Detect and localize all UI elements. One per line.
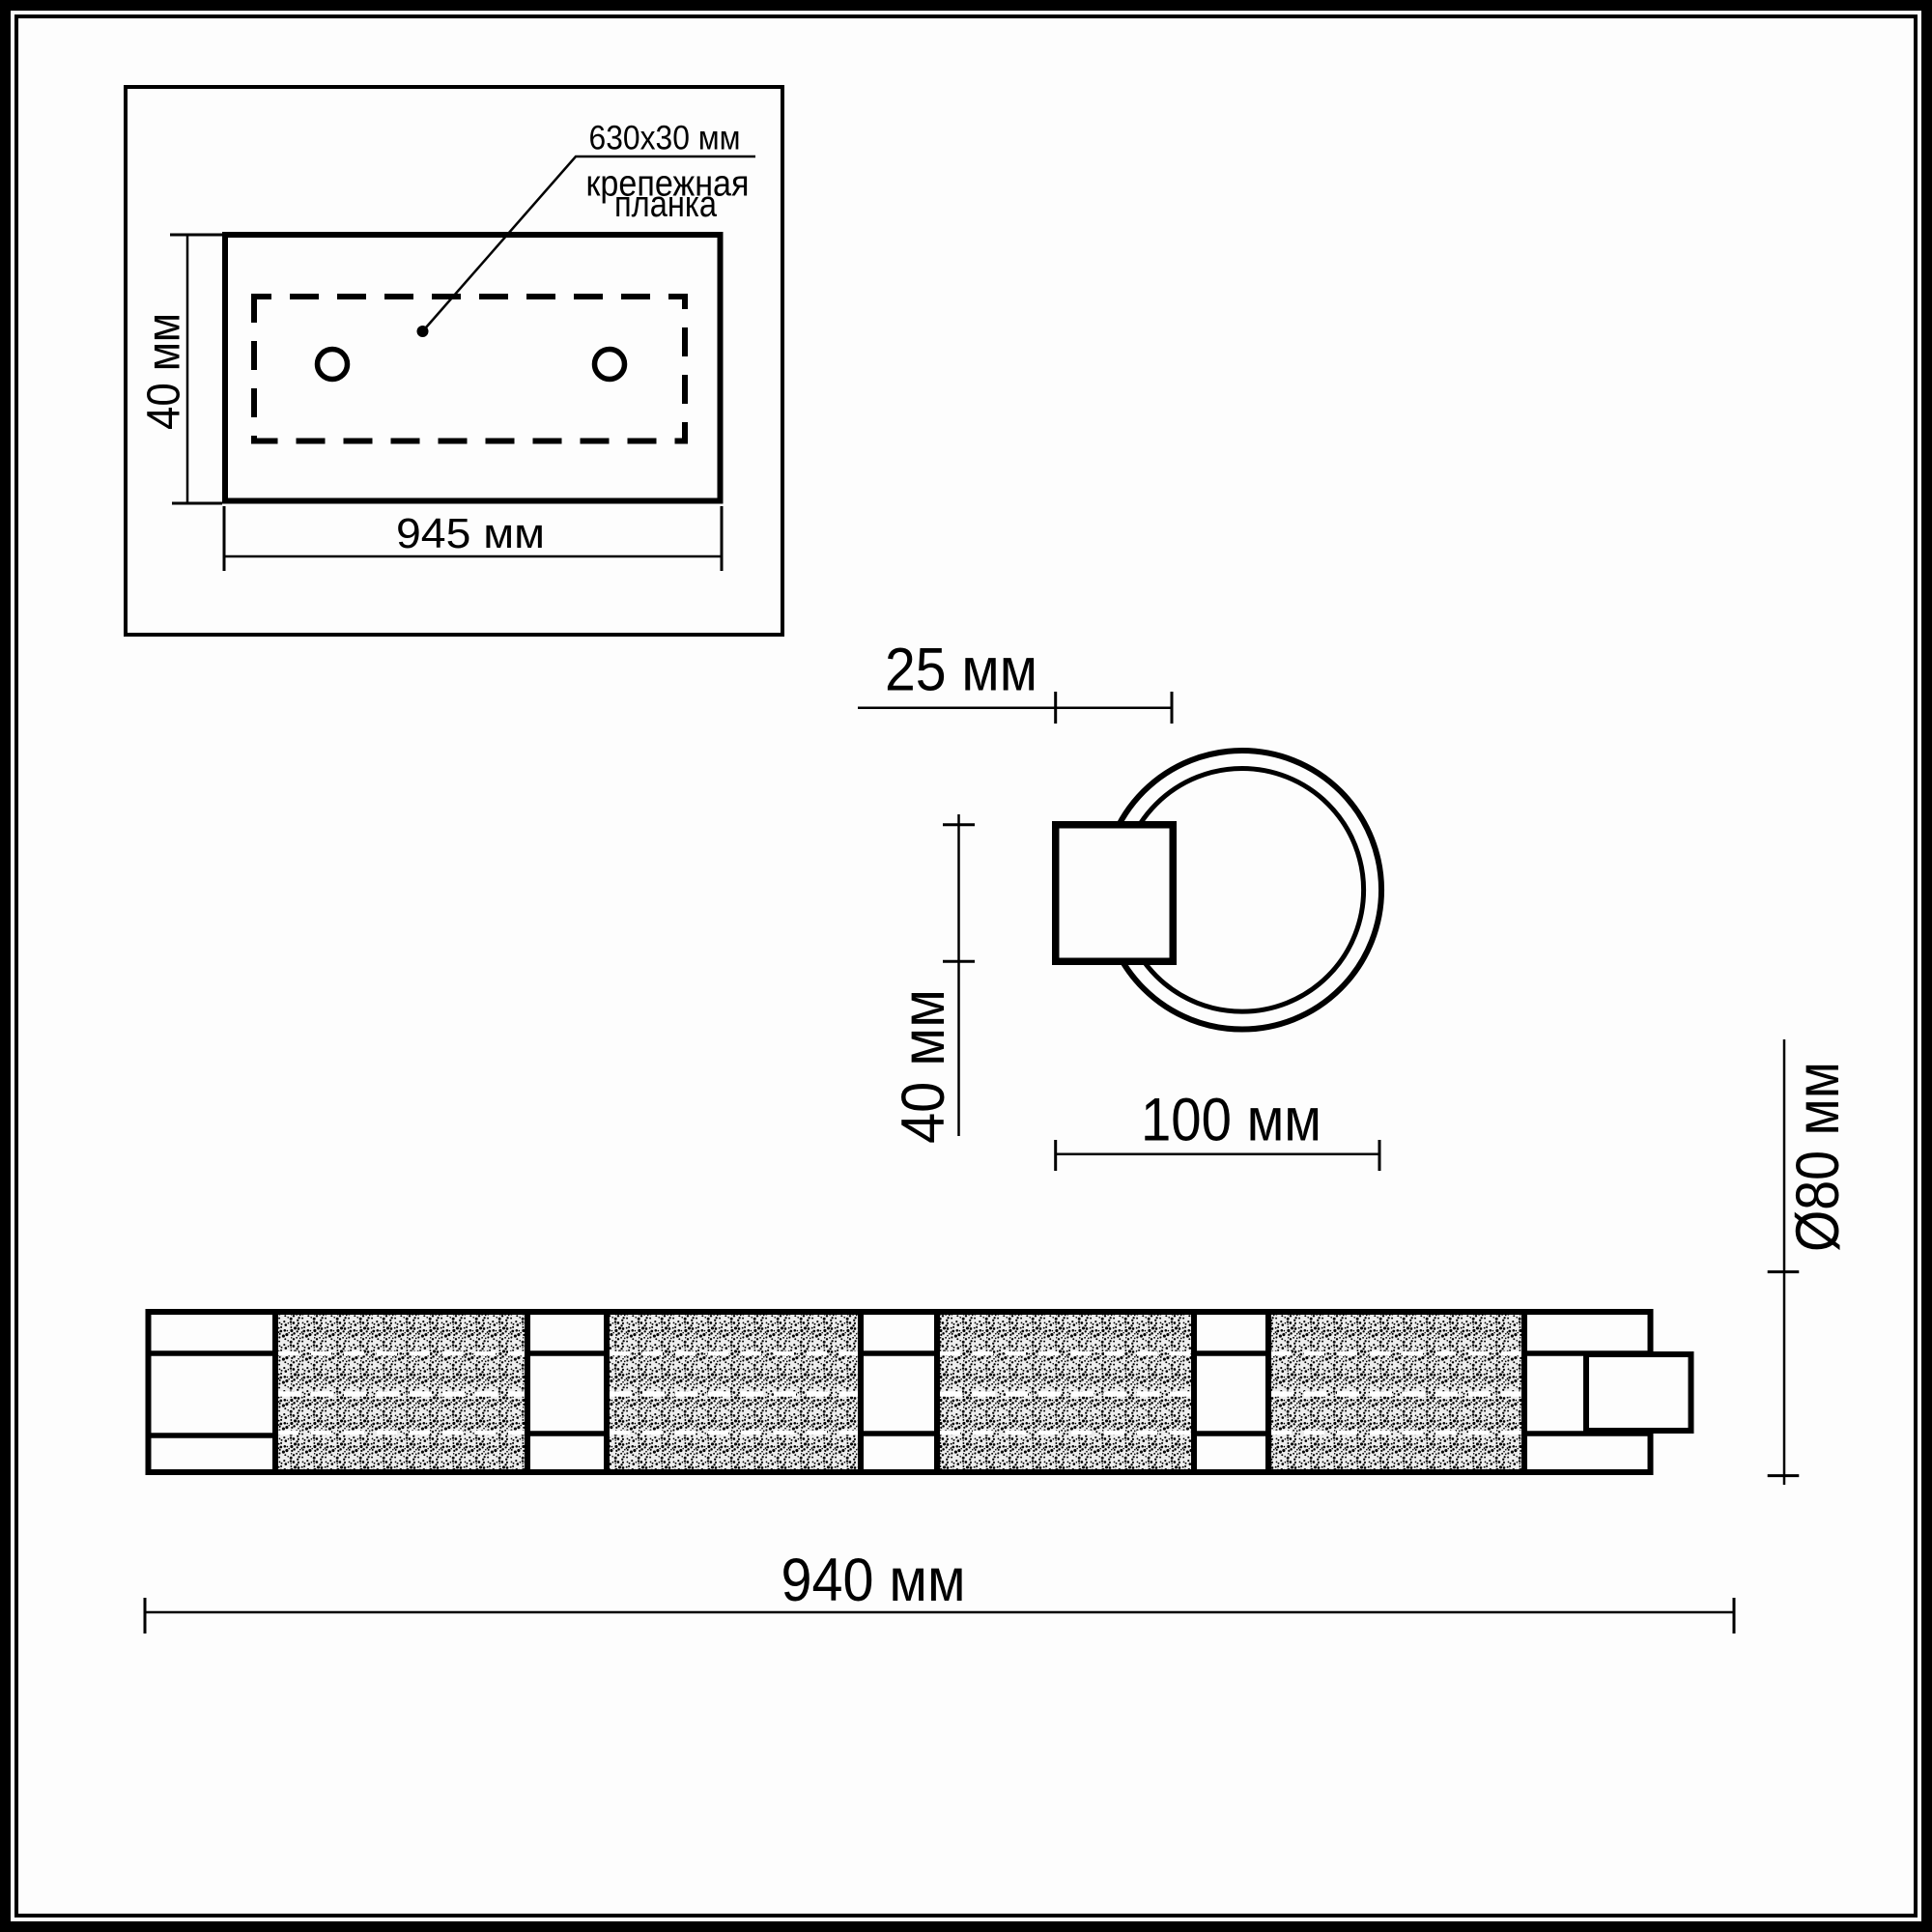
svg-text:25 мм: 25 мм bbox=[885, 637, 1037, 704]
svg-text:40 мм: 40 мм bbox=[890, 989, 957, 1144]
svg-text:Ø80 мм: Ø80 мм bbox=[1784, 1062, 1852, 1252]
svg-text:40 мм: 40 мм bbox=[139, 313, 190, 430]
svg-text:945 мм: 945 мм bbox=[396, 510, 545, 557]
svg-text:планка: планка bbox=[614, 185, 718, 225]
svg-text:940 мм: 940 мм bbox=[781, 1547, 966, 1614]
svg-text:100 мм: 100 мм bbox=[1141, 1087, 1321, 1154]
svg-text:630x30 мм: 630x30 мм bbox=[589, 120, 741, 157]
